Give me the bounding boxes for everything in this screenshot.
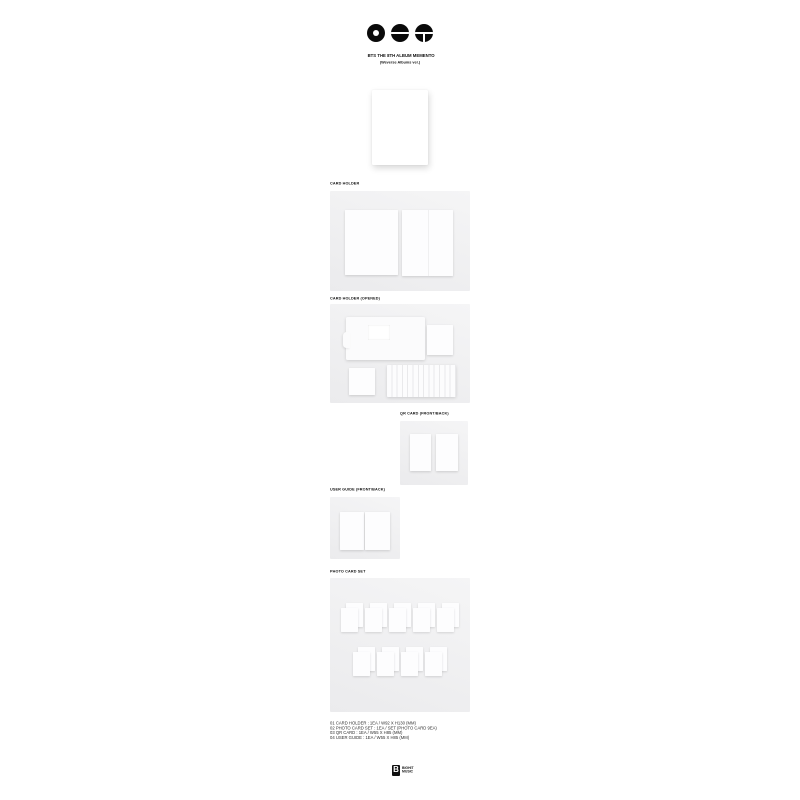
donut-circle-icon [367, 24, 385, 42]
photo-card-pair [341, 603, 363, 632]
section-label-qr-card: QR CARD (FRONT/BACK) [400, 411, 449, 415]
user-guide-panel [330, 497, 400, 559]
holder-window-cutout [368, 325, 390, 340]
photo-card-pair [389, 603, 411, 632]
photo-card-pair [413, 603, 435, 632]
holder-tab [343, 332, 350, 348]
brand-logo: B BIGHIT MUSIC [392, 761, 433, 779]
card-holder-back-mockup [402, 210, 453, 276]
contents-line-4: 04 USER GUIDE : 1EA / W55 X H85 (MM) [330, 735, 437, 740]
product-detail-page: BTS THE 8TH ALBUM MEMENTO (Weverse Album… [0, 0, 800, 800]
photo-card-front [389, 608, 406, 632]
contents-list: 01 CARD HOLDER : 1EA / W92 X H130 (MM) 0… [330, 721, 437, 740]
qr-card-panel [400, 421, 468, 485]
inserted-card-mockup [427, 325, 453, 355]
card-holder-front-mockup [345, 210, 398, 275]
card-holder-opened-panel [330, 304, 470, 403]
album-logo [328, 24, 472, 42]
photo-card-panel [330, 578, 470, 712]
content-column: BTS THE 8TH ALBUM MEMENTO (Weverse Album… [328, 0, 472, 800]
photo-card-front [365, 608, 382, 632]
photo-card-front [353, 652, 370, 676]
section-label-card-holder: CARD HOLDER [330, 181, 359, 185]
grid-circle-icon [415, 24, 433, 42]
photo-card-pair [425, 647, 447, 676]
photo-card-front [341, 608, 358, 632]
section-label-card-holder-opened: CARD HOLDER (OPENED) [330, 296, 380, 300]
fanned-card-stack-mockup [387, 365, 456, 397]
user-guide-back-mockup [365, 512, 390, 550]
photo-card-pair [401, 647, 423, 676]
photo-card-pair [437, 603, 459, 632]
qr-card-back-mockup [436, 434, 458, 471]
section-label-user-guide: USER GUIDE (FRONT/BACK) [330, 487, 385, 491]
brand-name: BIGHIT MUSIC [402, 767, 414, 774]
album-title-block: BTS THE 8TH ALBUM MEMENTO (Weverse Album… [328, 54, 472, 65]
photo-card-front [377, 652, 394, 676]
card-stack-mockup [349, 368, 375, 395]
photo-card-front [425, 652, 442, 676]
photo-card-pair [353, 647, 375, 676]
card-holder-panel [330, 191, 470, 291]
qr-card-front-mockup [410, 434, 431, 471]
photo-card-front [401, 652, 418, 676]
album-edition: (Weverse Albums ver.) [370, 60, 430, 62]
album-cover-mockup [372, 90, 428, 165]
photo-card-front [413, 608, 430, 632]
bighit-b-icon: B [392, 765, 400, 776]
photo-card-front [437, 608, 454, 632]
section-label-photo-card-set: PHOTO CARD SET [330, 569, 366, 573]
photo-card-pair [365, 603, 387, 632]
user-guide-front-mockup [340, 512, 364, 550]
opened-holder-mockup [346, 317, 425, 360]
album-title: BTS THE 8TH ALBUM MEMENTO [368, 54, 433, 56]
photo-card-pair [377, 647, 399, 676]
slit-circle-icon [391, 24, 409, 42]
